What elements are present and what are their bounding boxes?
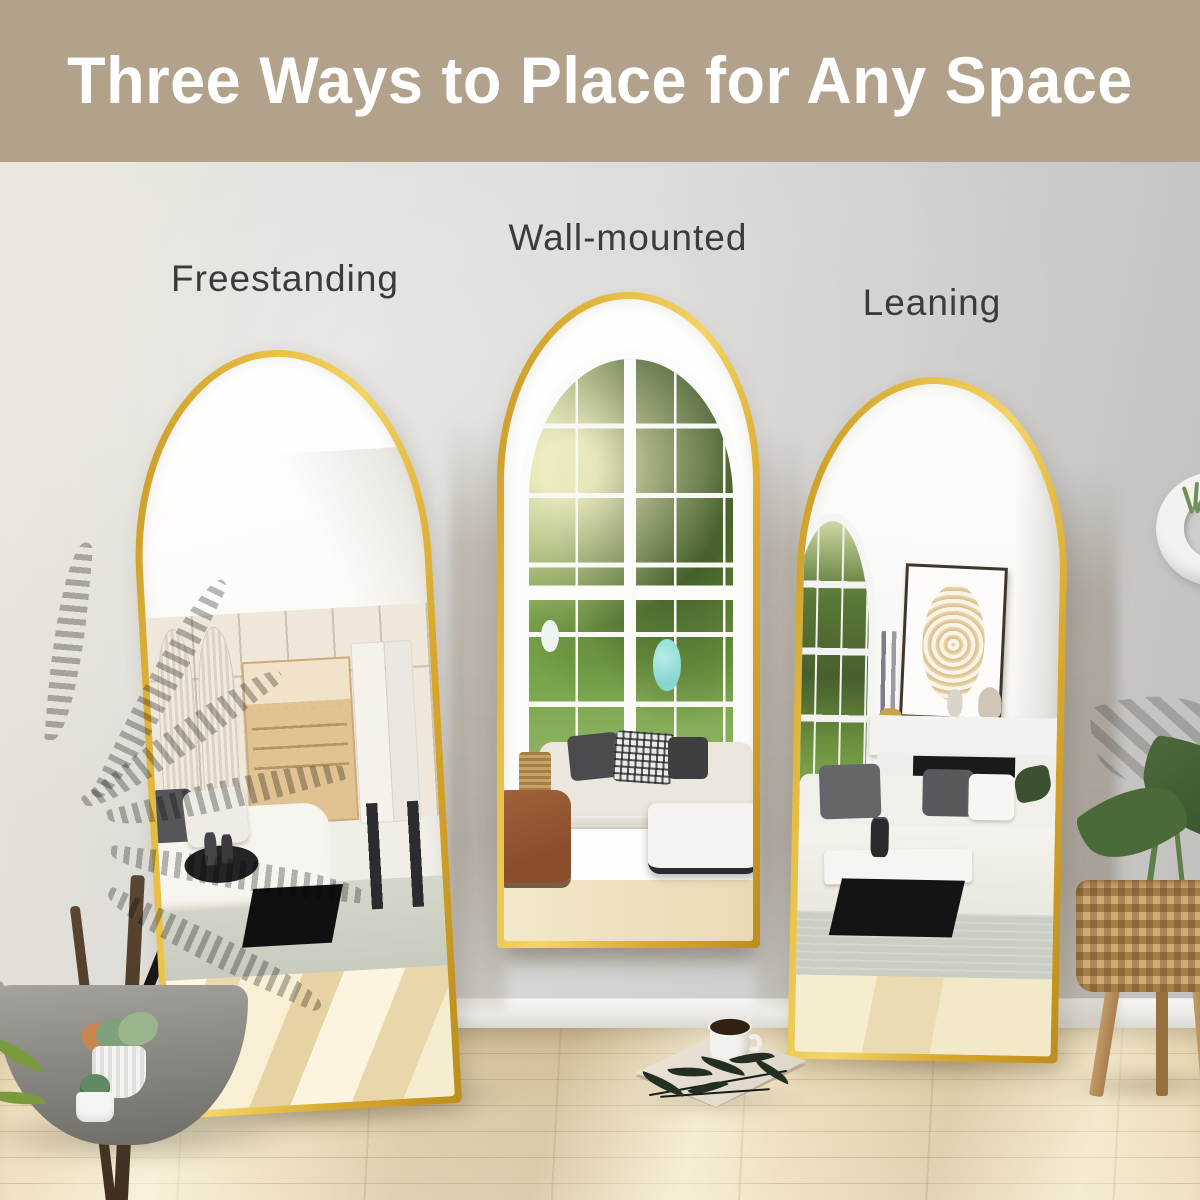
mirror-leaning [787, 374, 1070, 1063]
reflection-pillow [922, 769, 974, 817]
reflection-floor [504, 880, 753, 941]
reflection-leather-ottoman [504, 790, 571, 883]
window-mullions [529, 359, 733, 778]
reflection-floor [795, 974, 1052, 1056]
cup-handle [746, 1034, 762, 1052]
palm-leaf [91, 569, 229, 808]
reflection-mantel-decor [978, 686, 1002, 717]
wall-shadow [505, 944, 757, 972]
reflection-table-base [829, 878, 965, 937]
succulent-pot [76, 1092, 114, 1122]
cup-coffee-surface [708, 1018, 752, 1036]
reflection-pillow [968, 773, 1015, 821]
palm-leaf [44, 540, 93, 742]
palm-leaf [108, 845, 370, 904]
reflection-pillow [819, 763, 882, 819]
reflection-balloon [541, 620, 558, 652]
reflection-balloon [653, 639, 680, 690]
shell-artwork [920, 583, 987, 701]
mirror-glass [504, 299, 753, 941]
banner-title: Three Ways to Place for Any Space [67, 44, 1133, 119]
banner: Three Ways to Place for Any Space [0, 0, 1200, 162]
label-leaning: Leaning [832, 282, 1032, 324]
mirror-wall-mounted [497, 292, 760, 948]
mirror-glass [795, 382, 1064, 1057]
reflection-candles [875, 631, 910, 715]
reflection-fridge [350, 640, 421, 824]
reflection-coffee-table [648, 803, 753, 874]
reflection-checkered-pillow [612, 730, 675, 785]
product-image: Three Ways to Place for Any Space Freest… [0, 0, 1200, 1200]
reflection-arched-window [520, 350, 742, 787]
reflection-pillow [668, 737, 708, 779]
label-freestanding: Freestanding [171, 258, 399, 300]
label-wall-mounted: Wall-mounted [505, 217, 751, 259]
reflection-mantel-decor [947, 689, 963, 716]
woven-basket-planter [1076, 880, 1200, 992]
reflection-cup [870, 817, 889, 858]
